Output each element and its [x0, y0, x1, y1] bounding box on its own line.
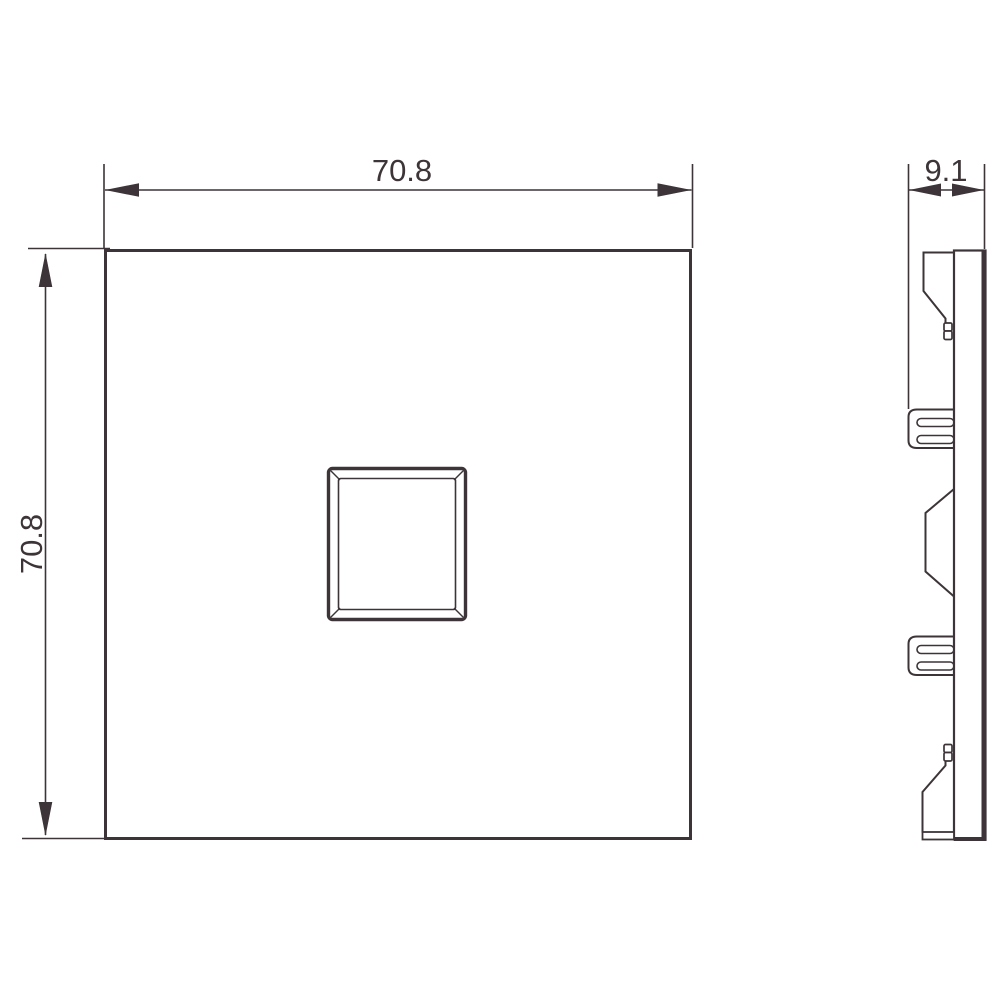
bottom-clip-slot-2	[917, 662, 954, 670]
dimension-width: 70.8	[104, 153, 693, 248]
bottom-hook	[923, 761, 946, 833]
technical-drawing: 70.8 70.8	[0, 0, 1000, 1000]
opening-outer-frame	[329, 469, 466, 620]
width-dimension-label: 70.8	[372, 153, 432, 188]
top-spring-clip	[909, 410, 955, 449]
side-view	[909, 251, 987, 840]
top-clip-slot-1	[917, 419, 954, 427]
depth-dimension-label: 9.1	[924, 153, 967, 188]
top-latch-tooth-upper	[944, 323, 952, 331]
center-lug	[926, 489, 955, 597]
top-clip-slot-2	[917, 436, 954, 444]
arrowhead-right-icon	[658, 183, 692, 197]
top-hook	[924, 253, 955, 324]
top-latch-tooth-lower	[944, 331, 952, 340]
bottom-hook-foot	[923, 832, 955, 840]
bottom-latch-tooth-upper	[944, 745, 952, 753]
side-body	[954, 251, 986, 840]
arrowhead-down-icon	[39, 802, 53, 836]
arrowhead-left-icon	[105, 183, 139, 197]
height-dimension-label: 70.8	[14, 514, 49, 574]
front-view	[106, 251, 691, 839]
center-opening	[329, 469, 466, 620]
bottom-clip-slot-1	[917, 646, 954, 654]
drawing-canvas: 70.8 70.8	[0, 0, 1000, 1000]
bottom-latch-tooth-lower	[944, 753, 952, 762]
dimension-height: 70.8	[14, 249, 110, 839]
arrowhead-up-icon	[39, 253, 53, 287]
